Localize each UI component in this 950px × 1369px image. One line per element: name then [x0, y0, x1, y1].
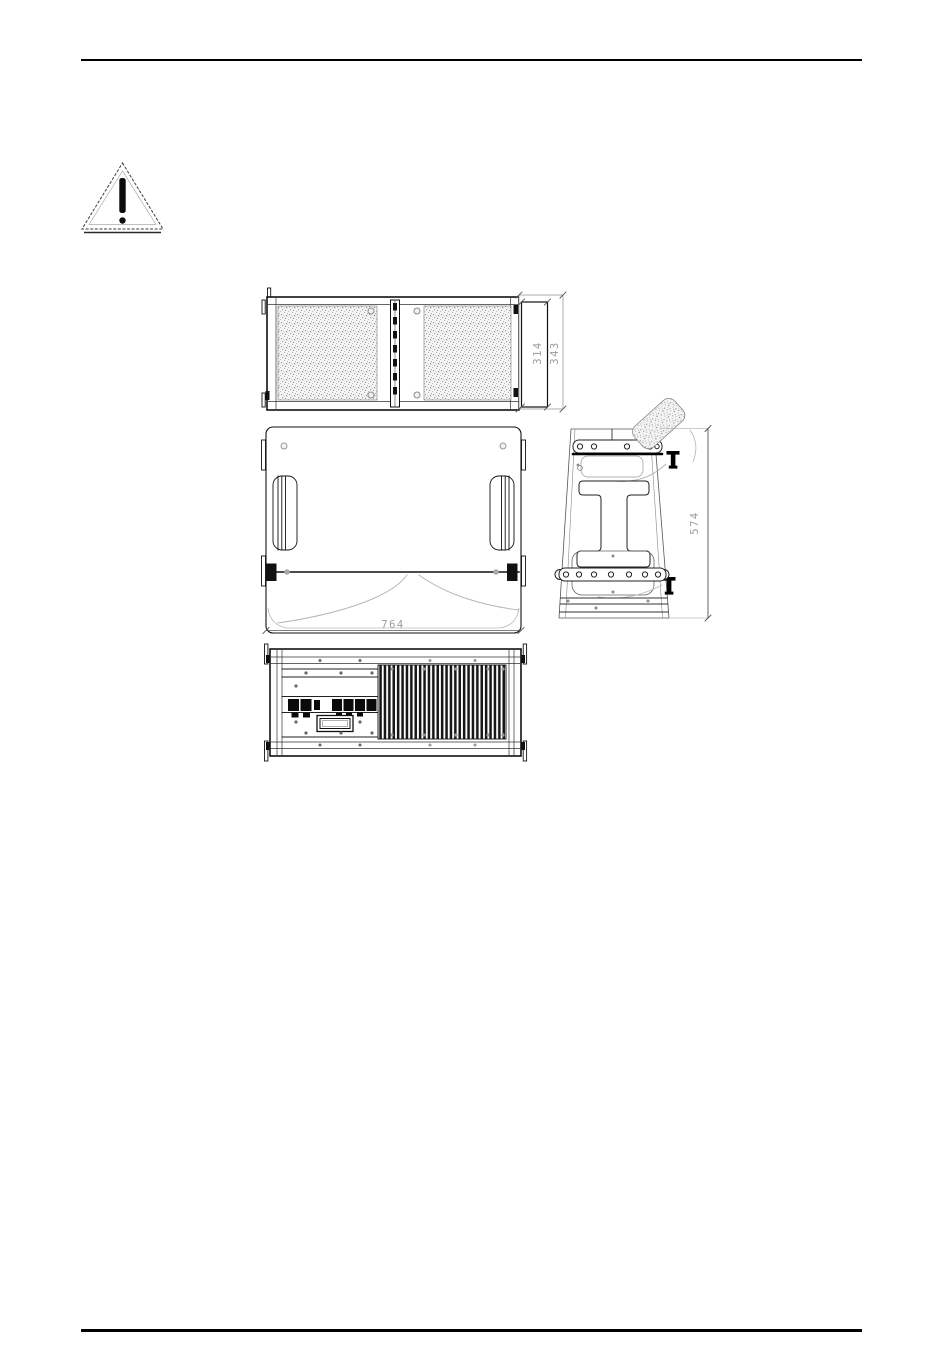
dimension-width: 764 — [381, 619, 404, 631]
drawings-canvas: 314 343 — [0, 0, 950, 1369]
side-view-drawing: 574 — [555, 395, 711, 621]
quick-pin-top — [667, 451, 680, 469]
warning-triangle-icon — [82, 163, 163, 233]
heatsink-fins — [378, 659, 506, 747]
manual-page: 314 343 — [0, 0, 950, 1369]
latch-left — [266, 564, 277, 582]
front-view-drawing: 314 343 — [262, 288, 566, 412]
grille-left — [278, 306, 377, 400]
display-window — [317, 716, 353, 732]
front-depth-box: 314 343 — [516, 292, 566, 412]
exclamation-dot — [119, 217, 125, 223]
rear-view-drawing — [265, 644, 527, 761]
latch-right — [507, 564, 518, 582]
dimension-depth-inner: 314 — [532, 341, 544, 364]
center-hinge-strip — [391, 300, 400, 407]
dimension-height: 574 — [689, 511, 701, 534]
exclamation-bar — [119, 178, 125, 213]
grille-right — [424, 306, 511, 400]
dimension-depth-outer: 343 — [549, 341, 561, 364]
top-view-drawing: 764 — [262, 427, 526, 634]
